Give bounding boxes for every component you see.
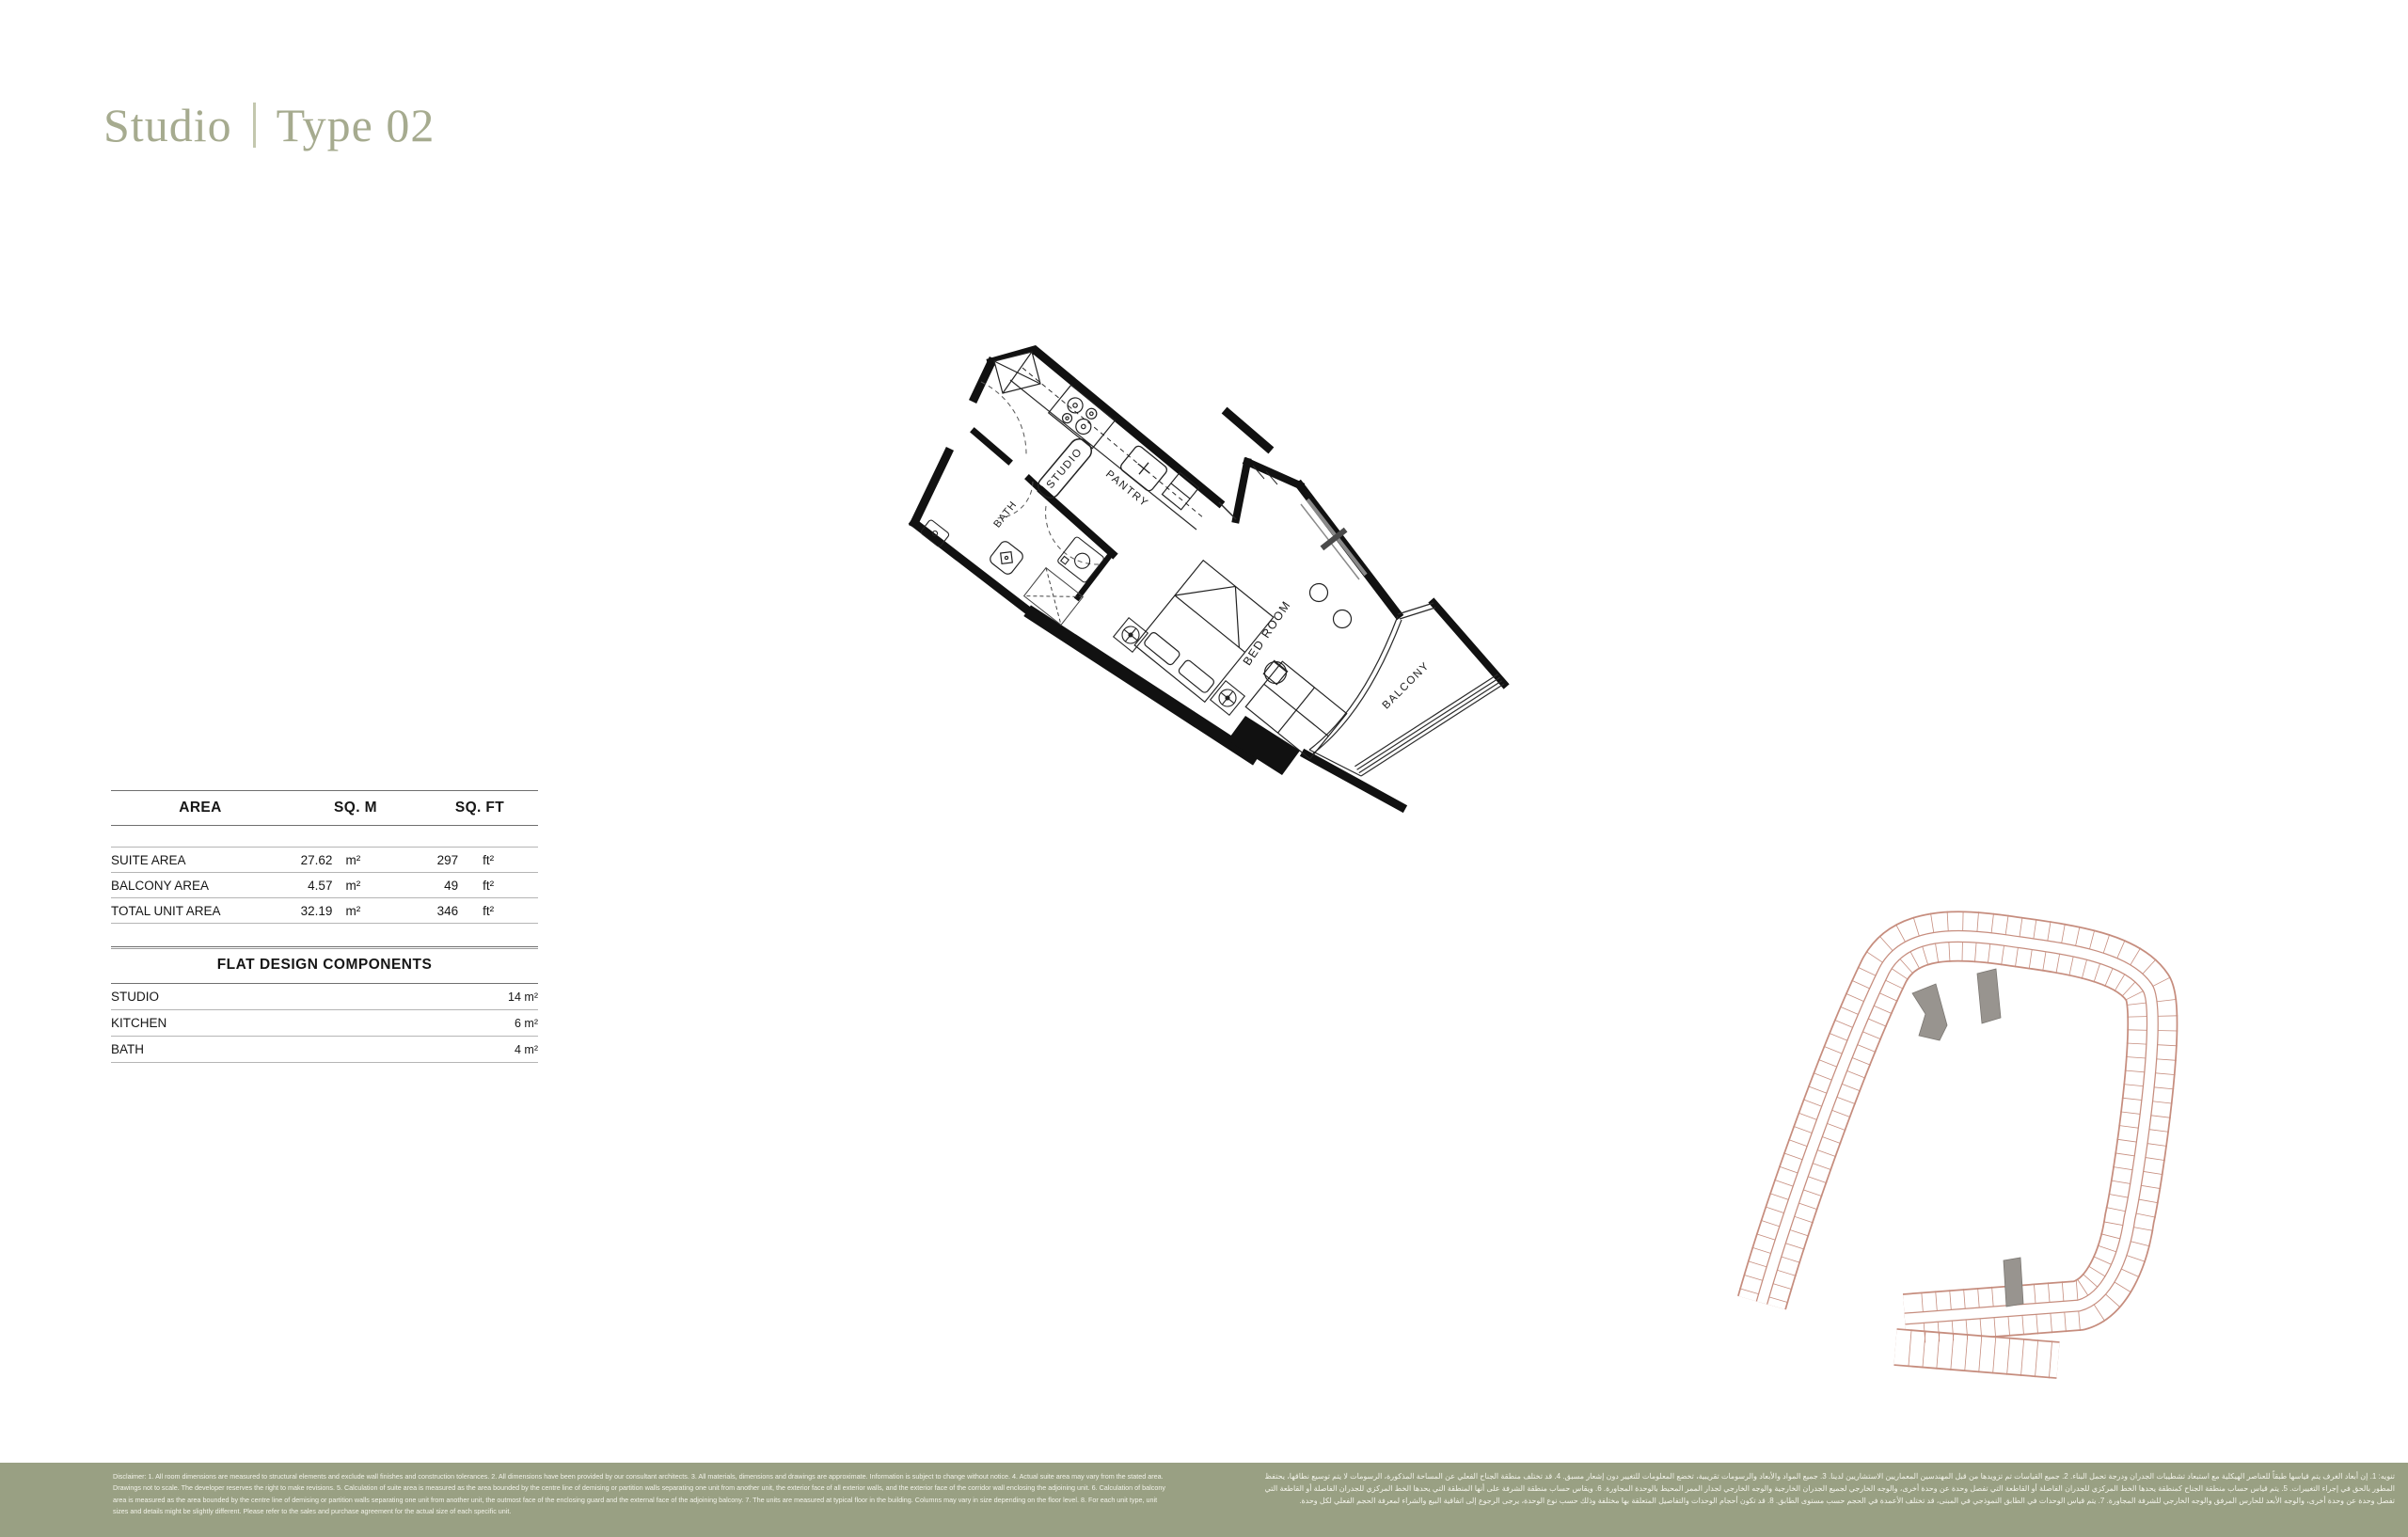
row-label: SUITE AREA — [111, 853, 276, 867]
col-header-sqft: SQ. FT — [421, 800, 538, 816]
row-sqm-unit: m² — [332, 879, 393, 893]
bath-label: BATH — [991, 499, 1019, 530]
row-label: BALCONY AREA — [111, 879, 276, 893]
balcony-label: BALCONY — [1381, 660, 1433, 712]
row-sqm: 32.19 — [276, 904, 333, 918]
table-row: SUITE AREA 27.62 m² 297 ft² — [111, 848, 538, 873]
unit-type-secondary: Type 02 — [277, 98, 436, 152]
unit: m² — [524, 1043, 538, 1056]
site-key-plan — [1731, 903, 2399, 1411]
table-spacer — [111, 826, 538, 848]
disclaimer-english: Disclaimer: 1. All room dimensions are m… — [113, 1471, 1166, 1518]
col-header-sqm: SQ. M — [290, 800, 421, 816]
table-row: TOTAL UNIT AREA 32.19 m² 346 ft² — [111, 898, 538, 924]
area-table: AREA SQ. M SQ. FT SUITE AREA 27.62 m² 29… — [111, 790, 538, 949]
row-sqft-unit: ft² — [458, 879, 538, 893]
unit: m² — [524, 990, 538, 1004]
row-sqft-unit: ft² — [458, 904, 538, 918]
chair — [1310, 584, 1328, 602]
col-header-area: AREA — [111, 800, 290, 816]
table-spacer — [111, 924, 538, 949]
row-sqm-unit: m² — [332, 904, 393, 918]
value: 4 — [515, 1043, 521, 1056]
disclaimer-arabic: تنويه: 1. إن أبعاد الغرف يتم قياسها طبقا… — [1261, 1471, 2395, 1508]
row-label: KITCHEN — [111, 1016, 166, 1030]
row-sqm: 4.57 — [276, 879, 333, 893]
page-title: Studio Type 02 — [103, 98, 435, 152]
row-sqft: 346 — [393, 904, 458, 918]
brochure-page: Studio Type 02 AREA SQ. M SQ. FT SUITE A… — [0, 0, 2408, 1537]
chair — [1334, 610, 1352, 628]
area-table-header: AREA SQ. M SQ. FT — [111, 790, 538, 826]
row-sqm-unit: m² — [332, 853, 393, 867]
row-value: 6 m² — [515, 1017, 538, 1030]
bed — [1134, 561, 1274, 703]
table-row: STUDIO 14 m² — [111, 984, 538, 1010]
fan-symbol — [1211, 681, 1245, 716]
unit: m² — [524, 1017, 538, 1030]
row-sqft: 297 — [393, 853, 458, 867]
unit-type-primary: Studio — [103, 98, 232, 152]
bedroom-label: BED ROOM — [1241, 598, 1293, 668]
value: 14 — [508, 990, 521, 1004]
row-sqm: 27.62 — [276, 853, 333, 867]
components-table: FLAT DESIGN COMPONENTS STUDIO 14 m² KITC… — [111, 946, 538, 1063]
value: 6 — [515, 1017, 521, 1030]
row-value: 14 m² — [508, 990, 538, 1004]
row-label: TOTAL UNIT AREA — [111, 904, 276, 918]
components-title: FLAT DESIGN COMPONENTS — [111, 946, 538, 984]
table-row: BALCONY AREA 4.57 m² 49 ft² — [111, 873, 538, 898]
table-row: BATH 4 m² — [111, 1037, 538, 1063]
highlighted-units — [1912, 969, 2023, 1307]
title-separator — [253, 103, 256, 148]
row-label: BATH — [111, 1042, 144, 1056]
row-sqft-unit: ft² — [458, 853, 538, 867]
table-row: KITCHEN 6 m² — [111, 1010, 538, 1037]
floor-plan-drawing: STUDIO PANTRY BATH BED ROOM BALCONY — [894, 334, 1552, 842]
row-sqft: 49 — [393, 879, 458, 893]
footer-bar: Disclaimer: 1. All room dimensions are m… — [0, 1463, 2408, 1537]
structural-column — [1228, 716, 1300, 775]
row-label: STUDIO — [111, 990, 159, 1004]
row-value: 4 m² — [515, 1043, 538, 1056]
toilet — [988, 539, 1024, 576]
console — [1301, 499, 1366, 579]
